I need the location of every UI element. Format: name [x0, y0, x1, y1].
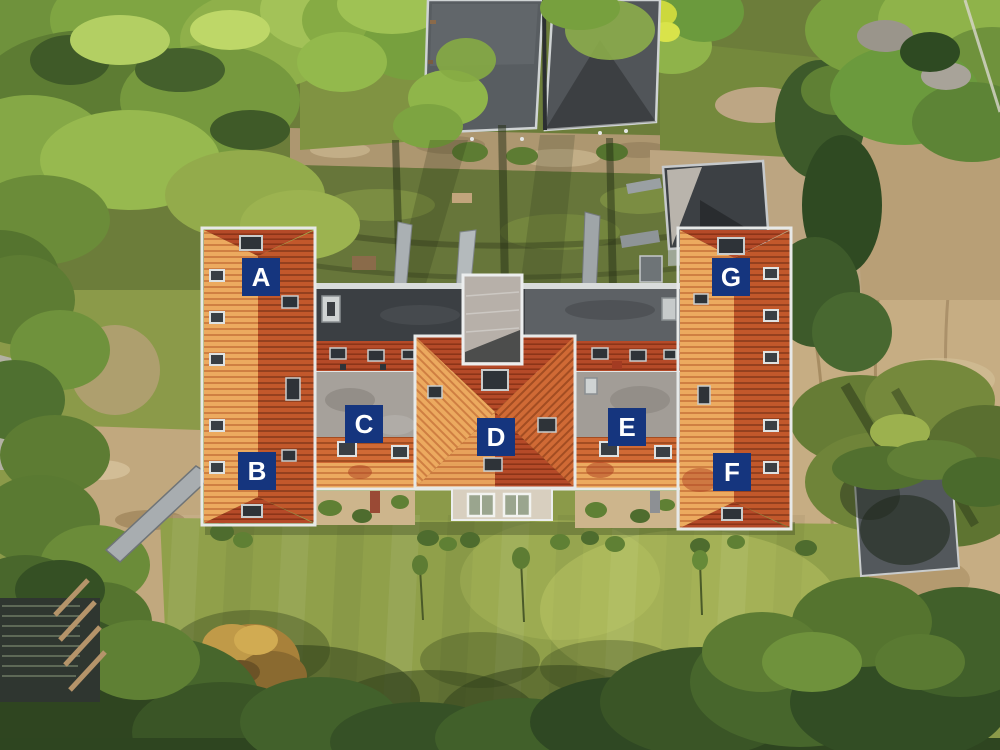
unit-labels-layer: ABCDEFG — [0, 0, 1000, 750]
unit-label-e: E — [608, 408, 646, 446]
unit-label-g: G — [712, 258, 750, 296]
unit-label-b: B — [238, 452, 276, 490]
unit-label-c: C — [345, 405, 383, 443]
unit-label-a: A — [242, 258, 280, 296]
unit-label-d: D — [477, 418, 515, 456]
unit-label-f: F — [713, 453, 751, 491]
aerial-photo: ABCDEFG — [0, 0, 1000, 750]
